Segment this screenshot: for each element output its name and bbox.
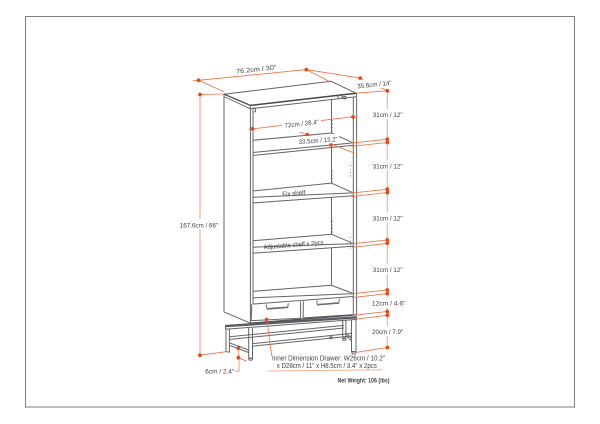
svg-text:Net Weight: 106 (lbs): Net Weight: 106 (lbs) — [338, 378, 390, 384]
svg-text:31cm / 12": 31cm / 12" — [373, 215, 403, 222]
svg-text:167.6cm / 66": 167.6cm / 66" — [180, 223, 219, 230]
svg-text:20cm / 7.9": 20cm / 7.9" — [372, 329, 404, 336]
svg-text:x D28cm / 11" x H8.5cm / 3.4": x D28cm / 11" x H8.5cm / 3.4" x 2pcs — [277, 363, 377, 370]
svg-text:31cm / 12": 31cm / 12" — [373, 112, 403, 119]
svg-text:31cm / 12": 31cm / 12" — [373, 267, 403, 274]
svg-text:6cm / 2.4": 6cm / 2.4" — [205, 368, 234, 375]
svg-text:12cm / 4.6": 12cm / 4.6" — [372, 301, 406, 308]
svg-text:Inner Dimension Drawer: W26cm: Inner Dimension Drawer: W26cm / 10.2" — [272, 355, 386, 362]
svg-text:31cm / 12": 31cm / 12" — [373, 163, 403, 170]
